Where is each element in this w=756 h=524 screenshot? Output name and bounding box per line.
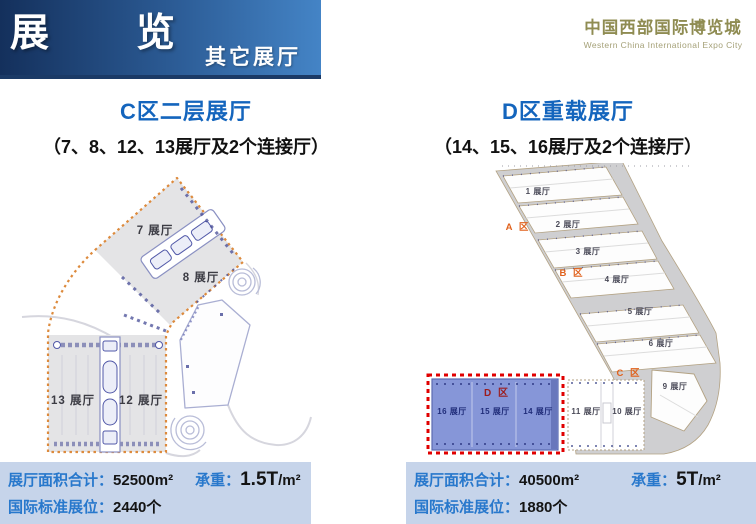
zone-c-label: C 区 (616, 368, 641, 379)
right-area-value: 40500 (519, 472, 561, 489)
header-banner: 展 览 其它展厅 (0, 0, 321, 79)
left-booth-value: 2440个 (113, 496, 161, 517)
right-booth-label: 国际标准展位： (414, 496, 519, 517)
left-area-unit: m² (155, 472, 173, 489)
logo-chinese-name: 中国西部国际博览城 (578, 14, 748, 38)
hall-3-label: 3 展厅 (576, 247, 601, 256)
hall-7-label: 7 展厅 (137, 224, 174, 237)
left-load-label: 承重： (195, 469, 240, 490)
slide: 展 览 其它展厅 中国西部国际博览城 Western China Interna… (0, 0, 756, 524)
left-load-value: 1.5T (240, 469, 278, 491)
left-booth-label: 国际标准展位： (8, 496, 113, 517)
page-subtitle: 其它展厅 (205, 41, 301, 71)
left-section-title: C区二层展厅 (0, 94, 372, 126)
right-stats-line2: 国际标准展位： 1880个 (414, 496, 567, 517)
right-section-subtitle: （14、15、16展厅及2个连接厅） (380, 133, 756, 159)
zone-a-label: A 区 (506, 222, 531, 233)
expo-city-logo: 中国西部国际博览城 Western China International Ex… (578, 14, 748, 50)
left-area-value: 52500 (113, 472, 155, 489)
zone-b-label: B 区 (559, 268, 584, 279)
hall-13-label: 13 展厅 (51, 394, 95, 407)
hall-5-label: 5 展厅 (628, 307, 653, 316)
left-stats-line2: 国际标准展位： 2440个 (8, 496, 161, 517)
left-stats-bar: 展厅面积合计： 52500 m² 承重： 1.5T /m² 国际标准展位： 24… (0, 462, 311, 524)
right-section-heading: D区重载展厅 （14、15、16展厅及2个连接厅） (380, 94, 756, 159)
hall-10-label: 10 展厅 (612, 407, 642, 416)
right-stats-line1: 展厅面积合计： 40500 m² 承重： 5T /m² (414, 469, 721, 491)
hall-16-label: 16 展厅 (437, 407, 467, 416)
right-section-title: D区重载展厅 (380, 94, 756, 126)
hall-2-label: 2 展厅 (556, 220, 581, 229)
right-booth-value: 1880个 (519, 496, 567, 517)
hall-15-label: 15 展厅 (480, 407, 510, 416)
d-zone-site-map: A 区 B 区 C 区 D 区 1 展厅 2 展厅 3 展厅 4 展厅 5 展厅… (410, 163, 756, 461)
c-map-pentagon-outline (180, 300, 250, 408)
left-section-heading: C区二层展厅 （7、8、12、13展厅及2个连接厅） (0, 94, 372, 159)
hall-6-label: 6 展厅 (649, 339, 674, 348)
zone-d-label: D 区 (484, 387, 510, 399)
page-title: 展 览 (10, 2, 213, 58)
left-stats-line1: 展厅面积合计： 52500 m² 承重： 1.5T /m² (8, 469, 301, 491)
right-area-label: 展厅面积合计： (414, 469, 519, 490)
hall-12-label: 12 展厅 (119, 394, 163, 407)
c-zone-floorplan-map: 7 展厅 8 展厅 12 展厅 13 展厅 (20, 165, 360, 461)
hall-8-label: 8 展厅 (183, 271, 220, 284)
right-load-value: 5T (676, 469, 698, 491)
hall-11-label: 11 展厅 (571, 407, 600, 416)
hall-4-label: 4 展厅 (605, 275, 630, 284)
hall-14-label: 14 展厅 (523, 407, 553, 416)
left-load-unit: /m² (278, 472, 301, 489)
hall-9-label: 9 展厅 (663, 382, 688, 391)
left-section-subtitle: （7、8、12、13展厅及2个连接厅） (0, 133, 372, 159)
right-area-unit: m² (561, 472, 579, 489)
logo-english-name: Western China International Expo City (578, 40, 748, 50)
left-area-label: 展厅面积合计： (8, 469, 113, 490)
right-stats-bar: 展厅面积合计： 40500 m² 承重： 5T /m² 国际标准展位： 1880… (406, 462, 756, 524)
right-load-unit: /m² (698, 472, 721, 489)
hall-1-label: 1 展厅 (526, 187, 551, 196)
right-load-label: 承重： (631, 469, 676, 490)
